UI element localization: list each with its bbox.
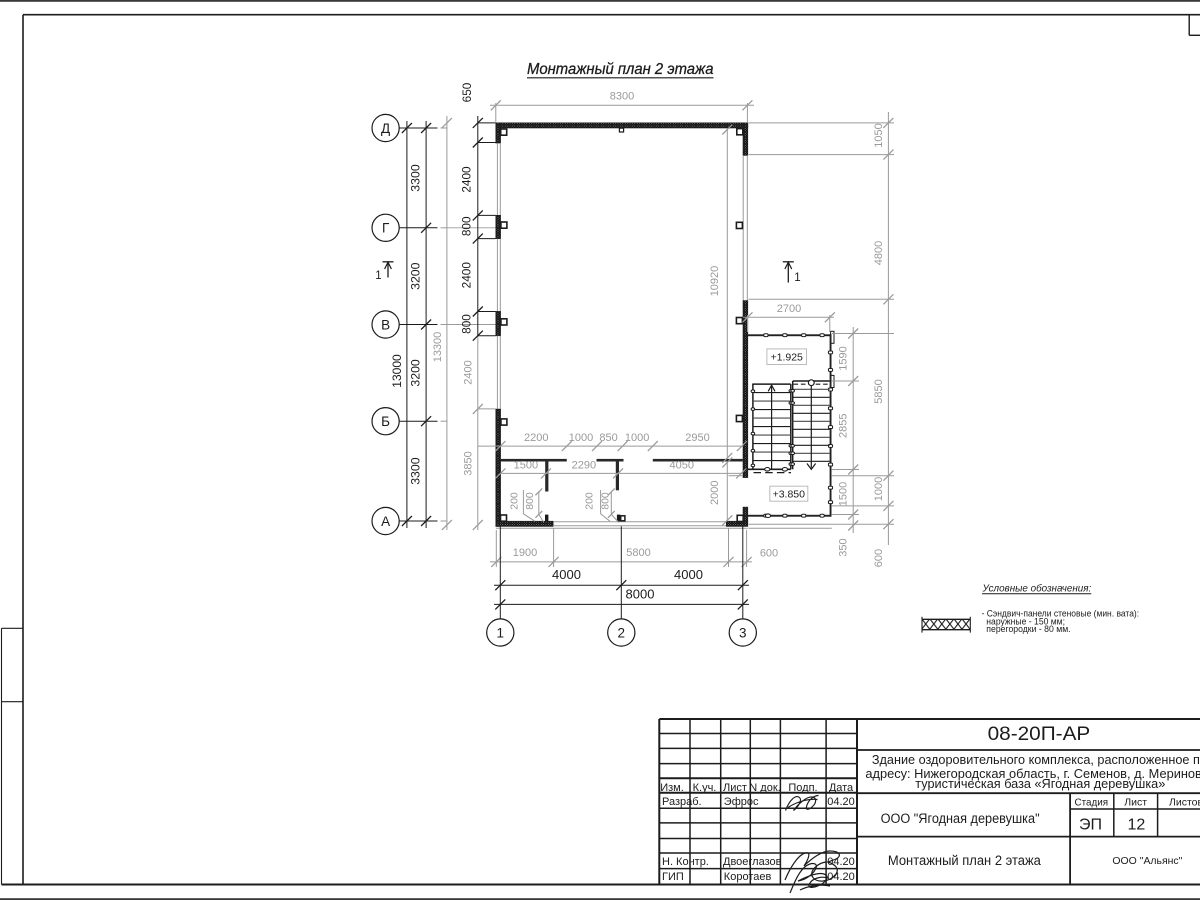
svg-text:3200: 3200 [409, 359, 423, 387]
svg-text:08-20П-АР: 08-20П-АР [988, 724, 1091, 745]
svg-text:ЭП: ЭП [1079, 817, 1102, 834]
svg-text:Разраб.: Разраб. [662, 796, 702, 808]
svg-text:Двоеглазов: Двоеглазов [723, 856, 782, 868]
svg-text:2000: 2000 [709, 480, 721, 504]
svg-text:600: 600 [873, 549, 885, 567]
svg-text:3300: 3300 [409, 164, 423, 192]
svg-text:1: 1 [375, 270, 381, 282]
svg-text:Монтажный план 2 этажа: Монтажный план 2 этажа [527, 61, 714, 78]
svg-text:+1.925: +1.925 [770, 351, 803, 363]
svg-text:5850: 5850 [873, 379, 885, 403]
svg-text:04.20: 04.20 [827, 856, 855, 868]
svg-text:Стадия: Стадия [1075, 796, 1109, 808]
svg-text:800: 800 [524, 492, 536, 510]
svg-text:Листов: Листов [1169, 796, 1200, 808]
svg-text:Н. Контр.: Н. Контр. [662, 856, 709, 868]
svg-text:В: В [381, 317, 390, 332]
svg-text:4000: 4000 [552, 567, 581, 582]
svg-text:800: 800 [600, 492, 612, 510]
svg-text:10920: 10920 [709, 266, 721, 297]
svg-text:1000: 1000 [625, 432, 649, 444]
svg-text:200: 200 [583, 492, 595, 510]
svg-text:туристическая база «Ягодная де: туристическая база «Ягодная деревушка» [915, 776, 1165, 791]
svg-text:2700: 2700 [777, 303, 801, 315]
svg-text:8300: 8300 [610, 91, 634, 103]
svg-text:2: 2 [618, 625, 626, 640]
svg-text:650: 650 [460, 82, 474, 102]
svg-text:ГИП: ГИП [662, 871, 684, 883]
svg-text:1500: 1500 [837, 482, 849, 506]
svg-text:Дата: Дата [829, 782, 854, 794]
svg-text:1900: 1900 [513, 547, 537, 559]
svg-text:3300: 3300 [409, 457, 423, 485]
svg-text:12: 12 [1128, 817, 1146, 834]
svg-text:2855: 2855 [837, 413, 849, 437]
svg-text:Коротаев: Коротаев [724, 871, 772, 883]
svg-text:600: 600 [760, 548, 778, 560]
svg-text:ООО "Ягодная деревушка": ООО "Ягодная деревушка" [881, 811, 1040, 826]
svg-text:2400: 2400 [462, 360, 474, 384]
svg-text:Г: Г [382, 221, 390, 236]
svg-text:2290: 2290 [572, 460, 596, 472]
svg-text:1500: 1500 [514, 460, 538, 472]
svg-text:N док.: N док. [749, 782, 780, 794]
svg-text:1: 1 [794, 272, 800, 284]
svg-text:Эфрос: Эфрос [724, 796, 759, 808]
svg-text:850: 850 [599, 432, 617, 444]
svg-text:3200: 3200 [409, 262, 423, 290]
svg-text:Монтажный план 2 этажа: Монтажный план 2 этажа [888, 853, 1041, 868]
svg-text:13000: 13000 [390, 354, 404, 388]
svg-text:2400: 2400 [459, 262, 473, 289]
svg-text:1590: 1590 [837, 346, 849, 370]
svg-text:Подп.: Подп. [788, 782, 817, 794]
svg-text:1: 1 [497, 625, 505, 640]
svg-text:Б: Б [381, 414, 390, 429]
svg-text:13300: 13300 [432, 332, 444, 363]
svg-text:350: 350 [837, 538, 849, 556]
svg-text:8000: 8000 [626, 587, 655, 602]
svg-text:Д: Д [381, 121, 390, 136]
svg-text:2200: 2200 [524, 432, 548, 444]
svg-text:Здание оздоровительного компле: Здание оздоровительного комплекса, распо… [872, 752, 1200, 767]
svg-text:200: 200 [509, 492, 521, 510]
svg-text:К.уч.: К.уч. [693, 782, 717, 794]
svg-text:800: 800 [459, 216, 473, 236]
svg-text:А: А [381, 514, 390, 529]
svg-text:4050: 4050 [670, 460, 694, 472]
svg-text:3850: 3850 [462, 451, 474, 475]
svg-text:04.20: 04.20 [827, 796, 855, 808]
svg-text:3: 3 [739, 625, 747, 640]
svg-text:перегородки - 80 мм.: перегородки - 80 мм. [986, 624, 1070, 634]
svg-text:4800: 4800 [873, 241, 885, 265]
svg-text:Изм.: Изм. [660, 782, 684, 794]
svg-text:Условные обозначения:: Условные обозначения: [982, 583, 1092, 595]
svg-text:+3.850: +3.850 [773, 489, 806, 501]
svg-text:4000: 4000 [674, 567, 703, 582]
svg-text:Лист: Лист [1124, 796, 1147, 808]
svg-text:Лист: Лист [723, 782, 747, 794]
svg-text:2400: 2400 [459, 166, 473, 193]
svg-text:04.20: 04.20 [827, 871, 855, 883]
svg-text:1000: 1000 [873, 477, 885, 501]
svg-text:1050: 1050 [873, 123, 885, 147]
svg-text:ООО "Альянс": ООО "Альянс" [1112, 855, 1182, 867]
svg-text:800: 800 [459, 314, 473, 334]
svg-text:5800: 5800 [626, 547, 650, 559]
svg-text:1000: 1000 [569, 432, 593, 444]
svg-text:2950: 2950 [685, 432, 709, 444]
